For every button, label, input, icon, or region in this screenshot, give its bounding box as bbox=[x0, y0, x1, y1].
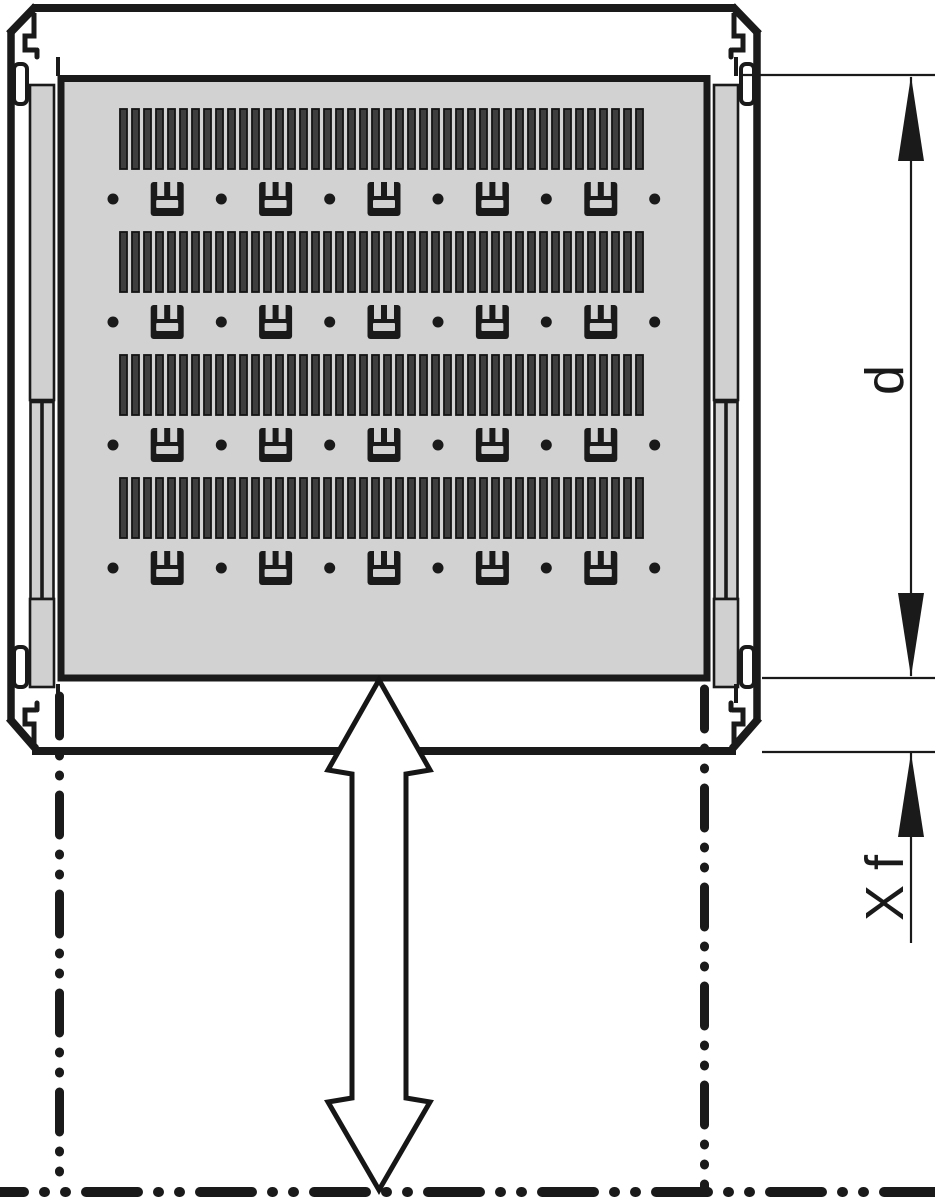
pilot-hole-dot bbox=[433, 440, 444, 451]
vent-slot bbox=[300, 232, 307, 292]
vent-slot bbox=[384, 232, 391, 292]
vent-slot bbox=[216, 232, 223, 292]
vent-slot bbox=[492, 232, 499, 292]
vent-slot bbox=[408, 109, 415, 169]
clip-slot bbox=[156, 200, 178, 208]
clip-body bbox=[476, 428, 509, 462]
clip-slot bbox=[481, 323, 503, 331]
clip-body bbox=[368, 305, 401, 339]
vent-slot bbox=[456, 355, 463, 415]
vent-slot bbox=[432, 355, 439, 415]
vent-slot bbox=[624, 232, 631, 292]
clip-notch bbox=[482, 304, 489, 319]
rail-top-segment bbox=[714, 85, 738, 400]
vent-slot bbox=[300, 478, 307, 538]
vent-slot bbox=[408, 355, 415, 415]
clip-notch bbox=[591, 550, 598, 565]
vent-slot bbox=[612, 355, 619, 415]
mounting-clip bbox=[584, 181, 617, 216]
vent-slot bbox=[564, 355, 571, 415]
pilot-hole-dot bbox=[324, 440, 335, 451]
vent-slot bbox=[528, 232, 535, 292]
vent-slot bbox=[396, 232, 403, 292]
mounting-clip bbox=[368, 550, 401, 585]
clip-notch bbox=[279, 181, 286, 196]
vent-slot bbox=[276, 232, 283, 292]
vent-slot bbox=[156, 232, 163, 292]
vent-slot bbox=[288, 355, 295, 415]
vent-slot bbox=[444, 355, 451, 415]
clip-body bbox=[259, 551, 292, 585]
clip-body bbox=[368, 428, 401, 462]
vent-slot bbox=[600, 355, 607, 415]
clip-notch bbox=[495, 304, 502, 319]
pilot-hole-dot bbox=[541, 563, 552, 574]
pilot-hole-dot bbox=[649, 440, 660, 451]
vent-slot bbox=[168, 109, 175, 169]
clip-notch bbox=[279, 427, 286, 442]
clip-body bbox=[584, 551, 617, 585]
mounting-clip bbox=[259, 304, 292, 339]
clip-slot bbox=[156, 569, 178, 577]
rail-inner-strip bbox=[727, 402, 738, 599]
vent-slot bbox=[348, 232, 355, 292]
dimension-xf-label: X f bbox=[855, 854, 915, 921]
vent-slot bbox=[324, 109, 331, 169]
vent-slot bbox=[360, 109, 367, 169]
vent-slot bbox=[396, 478, 403, 538]
vent-slot bbox=[168, 232, 175, 292]
vent-slot bbox=[204, 355, 211, 415]
vent-slot bbox=[540, 109, 547, 169]
mounting-clip bbox=[476, 304, 509, 339]
clip-slot bbox=[156, 323, 178, 331]
phantom-lines bbox=[0, 689, 935, 1192]
vent-slot bbox=[528, 478, 535, 538]
vent-slot bbox=[288, 109, 295, 169]
right-slide-rail bbox=[714, 85, 738, 687]
clip-notch bbox=[482, 181, 489, 196]
vent-slot bbox=[504, 355, 511, 415]
clip-body bbox=[584, 182, 617, 216]
vent-slot bbox=[492, 478, 499, 538]
pilot-hole-dot bbox=[433, 563, 444, 574]
pilot-hole-dot bbox=[649, 317, 660, 328]
vent-slot bbox=[552, 232, 559, 292]
arrowhead-down bbox=[898, 593, 924, 677]
clip-notch bbox=[604, 304, 611, 319]
vent-slot bbox=[528, 355, 535, 415]
technical-drawing-page: d X f bbox=[0, 0, 935, 1200]
vent-slot bbox=[180, 355, 187, 415]
clip-notch bbox=[374, 427, 381, 442]
vent-slot bbox=[456, 478, 463, 538]
vent-slot bbox=[312, 478, 319, 538]
pilot-hole-dot bbox=[324, 194, 335, 205]
clip-slot bbox=[590, 446, 612, 454]
clip-notch bbox=[604, 550, 611, 565]
vent-slot bbox=[180, 478, 187, 538]
pilot-hole-dot bbox=[108, 317, 119, 328]
clip-body bbox=[151, 428, 184, 462]
clip-notch bbox=[495, 550, 502, 565]
clip-slot bbox=[265, 200, 287, 208]
vent-slot bbox=[312, 232, 319, 292]
pilot-hole-dot bbox=[108, 440, 119, 451]
vent-slot bbox=[288, 232, 295, 292]
vent-slot bbox=[120, 355, 127, 415]
mounting-clip bbox=[259, 550, 292, 585]
vent-slot bbox=[600, 478, 607, 538]
vent-slot bbox=[228, 232, 235, 292]
clip-slot bbox=[590, 200, 612, 208]
pilot-hole-dot bbox=[433, 194, 444, 205]
vent-slot bbox=[300, 109, 307, 169]
vent-slot bbox=[240, 355, 247, 415]
vent-slot bbox=[432, 232, 439, 292]
vent-slot bbox=[468, 355, 475, 415]
clip-notch bbox=[387, 427, 394, 442]
mounting-clip bbox=[584, 550, 617, 585]
vent-slot bbox=[132, 232, 139, 292]
vent-slot bbox=[612, 109, 619, 169]
rail-inner-strip bbox=[31, 402, 42, 599]
vent-slot bbox=[468, 478, 475, 538]
clip-body bbox=[259, 182, 292, 216]
vent-slot bbox=[384, 109, 391, 169]
vent-slot bbox=[636, 355, 643, 415]
vent-slot bbox=[504, 109, 511, 169]
pilot-hole-dot bbox=[108, 563, 119, 574]
clip-notch bbox=[387, 550, 394, 565]
profile-slot-top-left bbox=[14, 64, 27, 104]
vent-slot bbox=[276, 355, 283, 415]
vent-slot bbox=[192, 355, 199, 415]
vent-slot bbox=[120, 478, 127, 538]
vent-slot bbox=[408, 478, 415, 538]
clip-notch bbox=[387, 181, 394, 196]
clip-notch bbox=[157, 550, 164, 565]
vent-slot bbox=[252, 109, 259, 169]
vent-slot bbox=[600, 109, 607, 169]
vent-slot bbox=[228, 109, 235, 169]
clip-notch bbox=[157, 427, 164, 442]
vent-slot bbox=[336, 478, 343, 538]
vent-slot bbox=[480, 232, 487, 292]
vent-slot bbox=[552, 355, 559, 415]
vent-slot bbox=[516, 355, 523, 415]
clip-notch bbox=[170, 550, 177, 565]
clip-notch bbox=[604, 181, 611, 196]
vent-slot bbox=[192, 478, 199, 538]
mounting-clip bbox=[151, 550, 184, 585]
vent-slot bbox=[576, 478, 583, 538]
rail-bottom-segment bbox=[714, 599, 738, 687]
vent-slot bbox=[252, 355, 259, 415]
clip-body bbox=[259, 428, 292, 462]
mounting-clip bbox=[584, 304, 617, 339]
vent-slot bbox=[372, 478, 379, 538]
vent-slot bbox=[420, 232, 427, 292]
vent-slot bbox=[420, 478, 427, 538]
vent-slot bbox=[420, 109, 427, 169]
pilot-hole-dot bbox=[541, 194, 552, 205]
vent-slot bbox=[504, 478, 511, 538]
vent-slot bbox=[492, 355, 499, 415]
vent-slot bbox=[312, 109, 319, 169]
vent-slot bbox=[156, 109, 163, 169]
vent-slot bbox=[240, 478, 247, 538]
vent-slot bbox=[192, 109, 199, 169]
rail-inner-strip bbox=[43, 402, 54, 599]
clip-notch bbox=[170, 181, 177, 196]
vent-slot bbox=[204, 109, 211, 169]
pilot-hole-dot bbox=[433, 317, 444, 328]
vent-slot bbox=[384, 478, 391, 538]
clip-notch bbox=[374, 550, 381, 565]
mounting-clip bbox=[151, 181, 184, 216]
vent-slot bbox=[276, 478, 283, 538]
vent-slot bbox=[204, 478, 211, 538]
vent-slot bbox=[288, 478, 295, 538]
clip-body bbox=[368, 182, 401, 216]
vent-slot bbox=[420, 355, 427, 415]
mounting-clip bbox=[259, 181, 292, 216]
clip-body bbox=[476, 551, 509, 585]
vent-slot bbox=[360, 232, 367, 292]
mounting-clip bbox=[368, 181, 401, 216]
vent-slot bbox=[552, 478, 559, 538]
vent-slot bbox=[396, 109, 403, 169]
clip-slot bbox=[481, 446, 503, 454]
vent-slot bbox=[636, 109, 643, 169]
mounting-clip bbox=[476, 550, 509, 585]
vent-slot bbox=[348, 109, 355, 169]
clip-notch bbox=[266, 181, 273, 196]
vent-slot bbox=[408, 232, 415, 292]
vent-slot bbox=[348, 478, 355, 538]
vent-slot bbox=[216, 109, 223, 169]
vent-slot bbox=[480, 109, 487, 169]
vent-slot bbox=[444, 478, 451, 538]
clip-body bbox=[151, 551, 184, 585]
vent-slot bbox=[636, 232, 643, 292]
vent-slot bbox=[372, 232, 379, 292]
vent-slot bbox=[588, 232, 595, 292]
clip-slot bbox=[265, 446, 287, 454]
vent-slot bbox=[540, 232, 547, 292]
vent-slot bbox=[396, 355, 403, 415]
vent-slot bbox=[300, 355, 307, 415]
vent-slot bbox=[564, 232, 571, 292]
vent-slot bbox=[132, 355, 139, 415]
vent-slot bbox=[516, 478, 523, 538]
clip-notch bbox=[266, 304, 273, 319]
vent-slot bbox=[156, 355, 163, 415]
clip-slot bbox=[373, 323, 395, 331]
vent-slot bbox=[360, 478, 367, 538]
rail-bottom-segment bbox=[30, 599, 54, 687]
mounting-clip bbox=[151, 427, 184, 462]
vent-slot bbox=[264, 355, 271, 415]
vent-slot bbox=[324, 232, 331, 292]
clip-slot bbox=[481, 569, 503, 577]
clip-notch bbox=[374, 181, 381, 196]
clip-notch bbox=[387, 304, 394, 319]
left-slide-rail bbox=[30, 85, 54, 687]
vent-slot bbox=[612, 478, 619, 538]
mounting-clip bbox=[259, 427, 292, 462]
clip-notch bbox=[495, 427, 502, 442]
clip-body bbox=[476, 305, 509, 339]
pilot-hole-dot bbox=[216, 194, 227, 205]
vent-slot bbox=[456, 232, 463, 292]
profile-slot-bottom-right bbox=[741, 647, 754, 687]
vent-slot bbox=[228, 355, 235, 415]
vent-slot bbox=[324, 355, 331, 415]
clip-notch bbox=[170, 427, 177, 442]
vent-slot bbox=[504, 232, 511, 292]
vent-slot bbox=[600, 232, 607, 292]
clip-body bbox=[476, 182, 509, 216]
vent-slot bbox=[252, 232, 259, 292]
vent-slot bbox=[216, 478, 223, 538]
vent-slot bbox=[240, 232, 247, 292]
vent-slot bbox=[432, 478, 439, 538]
vent-slot bbox=[444, 109, 451, 169]
vent-slot bbox=[492, 109, 499, 169]
pilot-hole-dot bbox=[324, 317, 335, 328]
vent-slot bbox=[264, 478, 271, 538]
vent-slot bbox=[372, 355, 379, 415]
vent-slot bbox=[336, 355, 343, 415]
vent-slot bbox=[180, 232, 187, 292]
vent-slot bbox=[144, 109, 151, 169]
vent-slot bbox=[636, 478, 643, 538]
vent-slot bbox=[564, 109, 571, 169]
vent-slot bbox=[576, 109, 583, 169]
mounting-clip bbox=[584, 427, 617, 462]
vent-slot bbox=[588, 109, 595, 169]
arrowhead-up bbox=[898, 76, 924, 161]
clip-notch bbox=[157, 181, 164, 196]
vent-slot bbox=[324, 478, 331, 538]
clip-body bbox=[368, 551, 401, 585]
clip-slot bbox=[373, 200, 395, 208]
vent-slot bbox=[168, 355, 175, 415]
pilot-hole-dot bbox=[324, 563, 335, 574]
clip-body bbox=[584, 428, 617, 462]
vent-slot bbox=[432, 109, 439, 169]
clip-slot bbox=[590, 323, 612, 331]
vent-slot bbox=[624, 355, 631, 415]
clip-body bbox=[259, 305, 292, 339]
clip-notch bbox=[170, 304, 177, 319]
vent-slot bbox=[372, 109, 379, 169]
vent-slot bbox=[588, 355, 595, 415]
profile-slot-bottom-left bbox=[14, 647, 27, 687]
vent-slot bbox=[132, 109, 139, 169]
pilot-hole-dot bbox=[216, 563, 227, 574]
vent-slot bbox=[444, 232, 451, 292]
vent-slot bbox=[480, 355, 487, 415]
vent-slot bbox=[144, 355, 151, 415]
vent-slot bbox=[336, 109, 343, 169]
clip-slot bbox=[481, 200, 503, 208]
vent-slot bbox=[204, 232, 211, 292]
vent-slot bbox=[540, 478, 547, 538]
rail-top-segment bbox=[30, 85, 54, 400]
clip-body bbox=[584, 305, 617, 339]
clip-notch bbox=[591, 304, 598, 319]
vent-slot bbox=[552, 109, 559, 169]
mounting-clip bbox=[476, 427, 509, 462]
mounting-clip bbox=[368, 427, 401, 462]
clip-slot bbox=[373, 446, 395, 454]
clip-slot bbox=[156, 446, 178, 454]
pilot-hole-dot bbox=[541, 317, 552, 328]
vent-slot bbox=[456, 109, 463, 169]
vent-slot bbox=[516, 232, 523, 292]
vent-slot bbox=[576, 355, 583, 415]
clip-notch bbox=[591, 181, 598, 196]
arrowhead-up bbox=[898, 753, 924, 837]
rack-shelf-diagram: d X f bbox=[0, 0, 935, 1200]
vent-slot bbox=[156, 478, 163, 538]
vent-slot bbox=[120, 109, 127, 169]
vent-slot bbox=[528, 109, 535, 169]
clip-body bbox=[151, 182, 184, 216]
clip-notch bbox=[374, 304, 381, 319]
vent-slot bbox=[540, 355, 547, 415]
vent-slot bbox=[276, 109, 283, 169]
vent-slot bbox=[516, 109, 523, 169]
vent-slot bbox=[228, 478, 235, 538]
vent-slot bbox=[144, 232, 151, 292]
mounting-clip bbox=[368, 304, 401, 339]
vent-slot bbox=[624, 109, 631, 169]
pilot-hole-dot bbox=[541, 440, 552, 451]
clip-notch bbox=[604, 427, 611, 442]
clip-notch bbox=[591, 427, 598, 442]
pilot-hole-dot bbox=[216, 440, 227, 451]
clip-notch bbox=[266, 427, 273, 442]
vent-slot bbox=[360, 355, 367, 415]
motion-arrow bbox=[328, 680, 430, 1190]
clip-notch bbox=[482, 550, 489, 565]
vent-slot bbox=[468, 109, 475, 169]
vent-slot bbox=[120, 232, 127, 292]
clip-body bbox=[151, 305, 184, 339]
rail-inner-strip bbox=[715, 402, 726, 599]
vent-slot bbox=[624, 478, 631, 538]
vent-slot bbox=[588, 478, 595, 538]
vent-slot bbox=[468, 232, 475, 292]
mounting-clip bbox=[476, 181, 509, 216]
vent-slot bbox=[192, 232, 199, 292]
clip-notch bbox=[482, 427, 489, 442]
vent-slot bbox=[348, 355, 355, 415]
clip-notch bbox=[279, 304, 286, 319]
clip-notch bbox=[495, 181, 502, 196]
vent-slot bbox=[264, 232, 271, 292]
vent-slot bbox=[216, 355, 223, 415]
vent-slot bbox=[264, 109, 271, 169]
clip-notch bbox=[279, 550, 286, 565]
vent-slot bbox=[312, 355, 319, 415]
profile-slot-top-right bbox=[741, 64, 754, 104]
mounting-clip bbox=[151, 304, 184, 339]
